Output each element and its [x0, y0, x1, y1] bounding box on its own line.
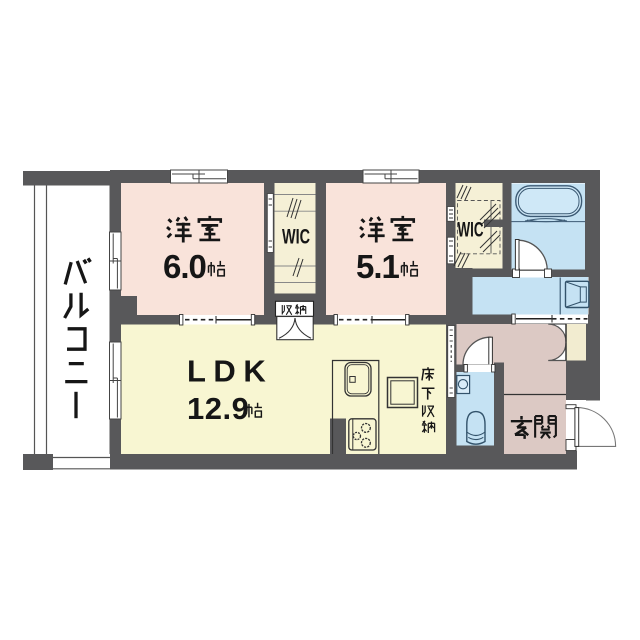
- svg-text:LDK: LDK: [187, 354, 273, 389]
- svg-text:WIC: WIC: [458, 218, 484, 242]
- svg-text:5.1: 5.1: [356, 248, 400, 285]
- svg-text:12.9: 12.9: [187, 391, 249, 426]
- svg-text:WIC: WIC: [282, 225, 310, 249]
- svg-text:6.0: 6.0: [163, 248, 206, 285]
